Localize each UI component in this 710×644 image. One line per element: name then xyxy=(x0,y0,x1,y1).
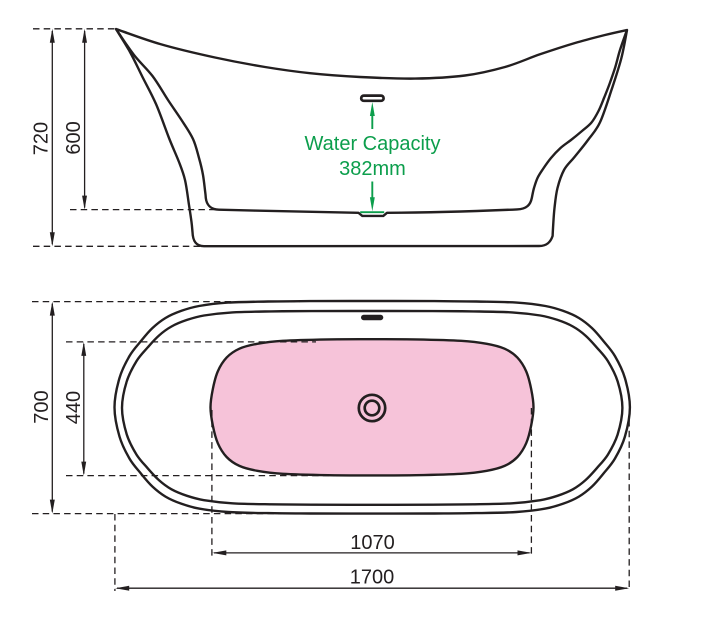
svg-text:1700: 1700 xyxy=(350,567,395,589)
svg-text:440: 440 xyxy=(63,391,85,424)
svg-text:700: 700 xyxy=(31,390,53,423)
svg-text:600: 600 xyxy=(63,121,85,154)
svg-text:720: 720 xyxy=(31,122,53,155)
svg-text:Water Capacity: Water Capacity xyxy=(305,133,441,155)
svg-text:1070: 1070 xyxy=(350,532,395,554)
svg-text:382mm: 382mm xyxy=(339,158,406,180)
